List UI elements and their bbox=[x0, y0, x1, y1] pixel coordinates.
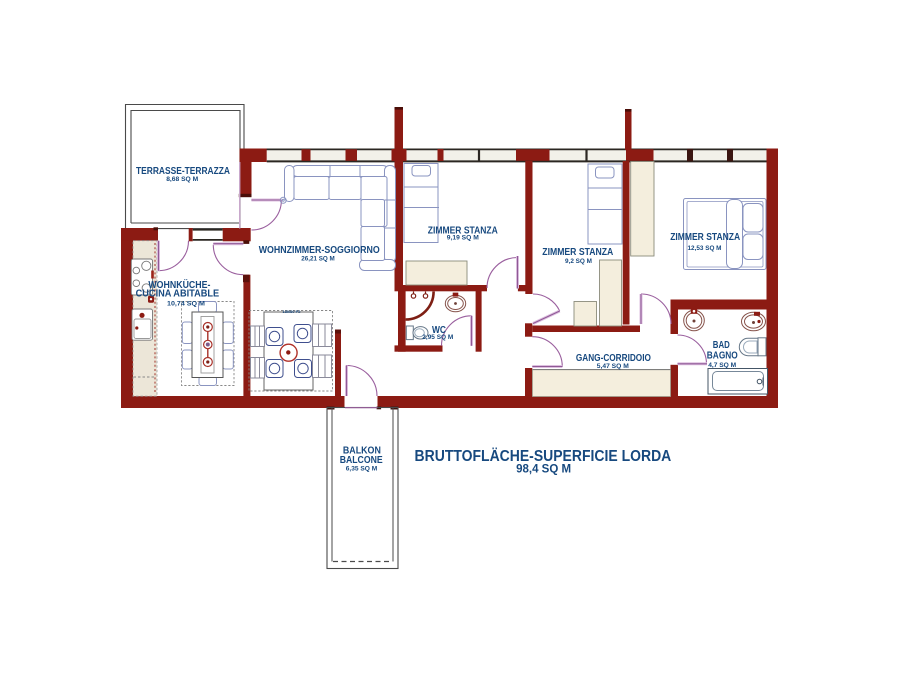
svg-text:4,7 SQ M: 4,7 SQ M bbox=[708, 362, 736, 369]
svg-text:ZIMMER STANZA: ZIMMER STANZA bbox=[670, 232, 740, 243]
svg-text:CUCINA ABITABLE: CUCINA ABITABLE bbox=[136, 289, 220, 300]
svg-text:5,47 SQ M: 5,47 SQ M bbox=[597, 363, 629, 370]
svg-text:6,35 SQ M: 6,35 SQ M bbox=[346, 465, 378, 472]
svg-text:98,4 SQ M: 98,4 SQ M bbox=[516, 464, 571, 476]
svg-text:TERRASSE-TERRAZZA: TERRASSE-TERRAZZA bbox=[136, 166, 230, 177]
svg-text:9,2 SQ M: 9,2 SQ M bbox=[565, 258, 592, 265]
svg-text:2,95 SQ M: 2,95 SQ M bbox=[422, 334, 453, 341]
svg-text:BAD: BAD bbox=[713, 340, 730, 351]
svg-text:180/80 P2: 180/80 P2 bbox=[283, 310, 301, 314]
svg-text:12,53 SQ M: 12,53 SQ M bbox=[688, 245, 722, 252]
svg-text:BAGNO: BAGNO bbox=[707, 350, 738, 361]
svg-text:10,74 SQ M: 10,74 SQ M bbox=[167, 301, 205, 308]
svg-text:8,68 SQ M: 8,68 SQ M bbox=[166, 176, 198, 183]
svg-text:26,21 SQ M: 26,21 SQ M bbox=[301, 255, 335, 262]
svg-text:ZIMMER STANZA: ZIMMER STANZA bbox=[542, 247, 613, 258]
svg-text:BRUTTOFLÄCHE-SUPERFICIE LORDA: BRUTTOFLÄCHE-SUPERFICIE LORDA bbox=[415, 447, 672, 465]
svg-text:WOHNZIMMER-SOGGIORNO: WOHNZIMMER-SOGGIORNO bbox=[259, 245, 380, 256]
svg-text:9,19 SQ M: 9,19 SQ M bbox=[447, 235, 479, 242]
